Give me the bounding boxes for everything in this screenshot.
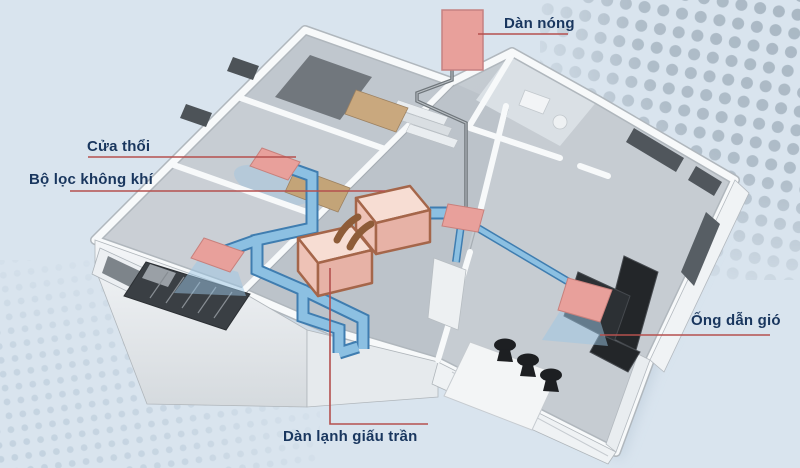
indoor-unit-upper: [356, 186, 430, 254]
hvac-apartment-diagram: Dàn nóng Cửa thổi Bộ lọc không khí Ống d…: [0, 0, 800, 468]
window-room2: [180, 104, 212, 127]
window-room1: [227, 57, 259, 80]
outdoor-unit: [442, 10, 483, 70]
diagram-canvas: [0, 0, 800, 468]
label-outdoor-unit: Dàn nóng: [504, 15, 575, 32]
label-blow-vent: Cửa thổi: [87, 138, 150, 155]
label-air-duct: Ống dẫn gió: [691, 312, 781, 329]
label-ceiling-unit: Dàn lạnh giấu trần: [283, 428, 417, 445]
toilet: [553, 115, 567, 129]
label-air-filter: Bộ lọc không khí: [29, 171, 153, 188]
